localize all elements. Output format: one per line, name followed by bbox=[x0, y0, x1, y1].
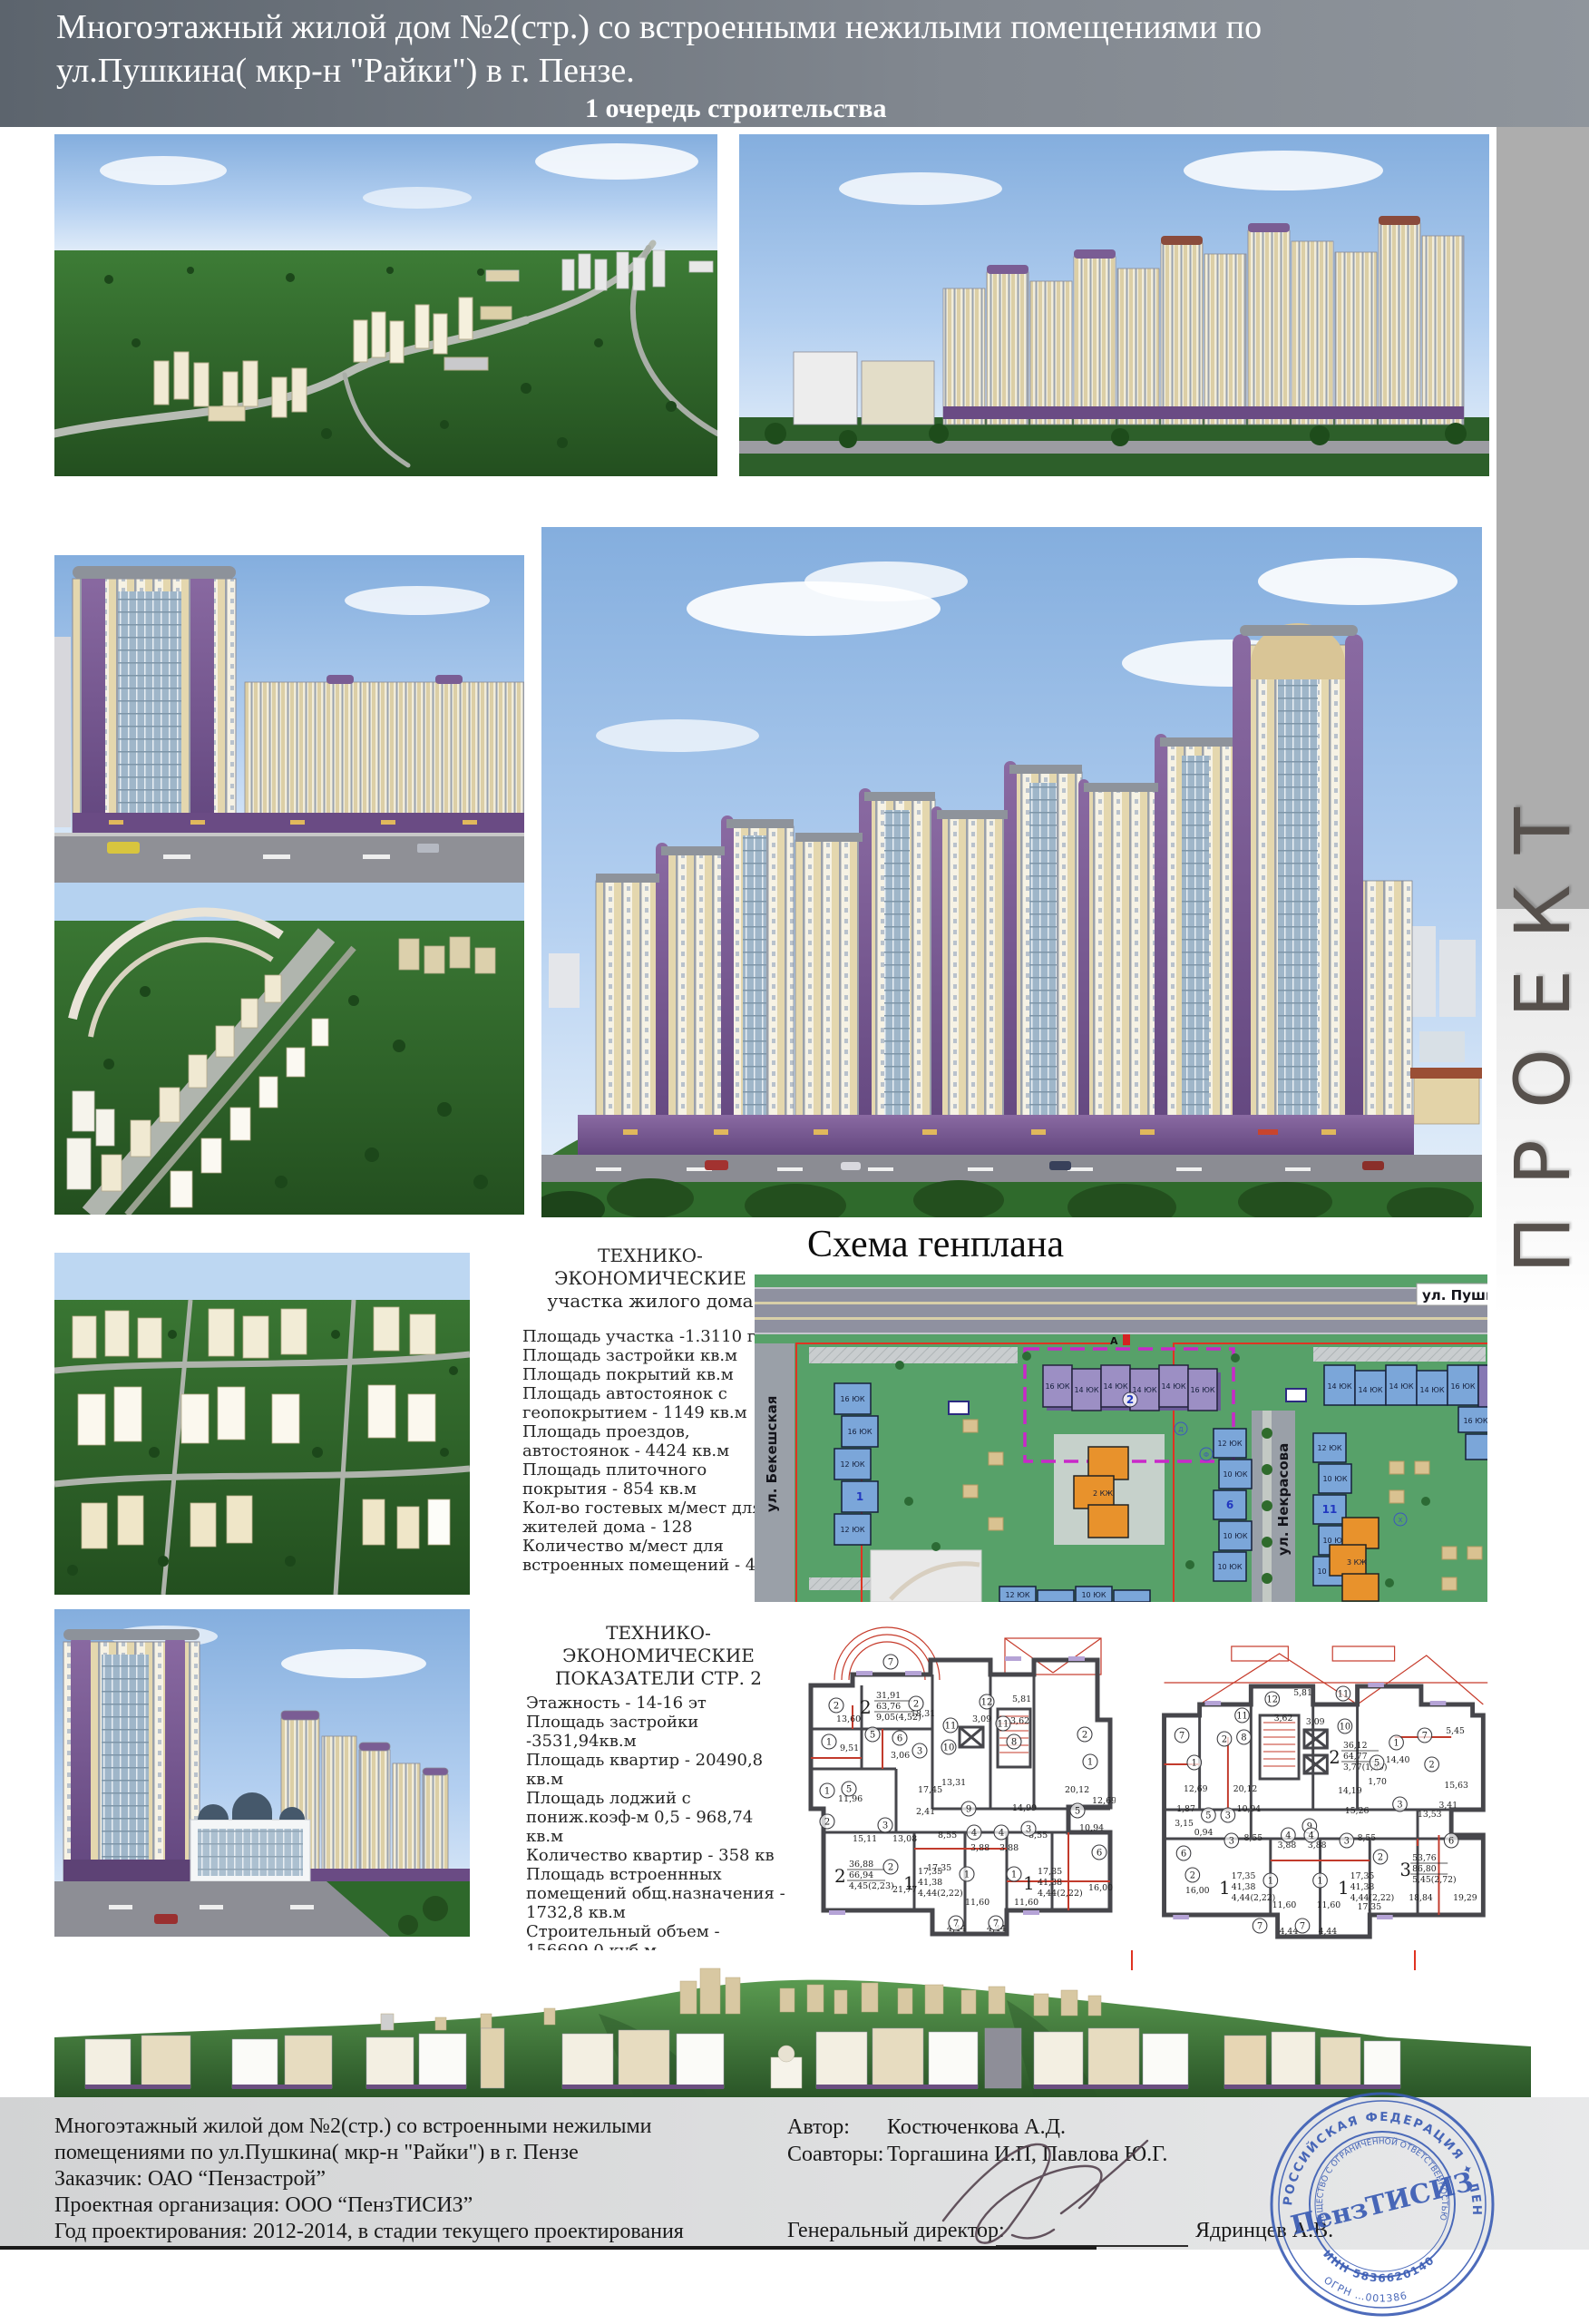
svg-text:17,35: 17,35 bbox=[1350, 1871, 1375, 1881]
site-plan-drawing: 16 ЮК 14 ЮК 14 ЮК 14 ЮК 14 ЮК 16 ЮК 2 А … bbox=[755, 1274, 1487, 1602]
svg-text:16 ЮК: 16 ЮК bbox=[1463, 1417, 1487, 1425]
footer-left-line: Проектная организация: ООО “ПензТИСИЗ” bbox=[54, 2192, 684, 2219]
svg-text:3,41: 3,41 bbox=[1438, 1801, 1457, 1811]
svg-text:11: 11 bbox=[1322, 1503, 1338, 1516]
svg-text:10,94: 10,94 bbox=[1237, 1804, 1262, 1814]
svg-text:41,38: 41,38 bbox=[1038, 1878, 1062, 1888]
svg-text:13,60: 13,60 bbox=[836, 1714, 861, 1724]
site-plan: 16 ЮК 14 ЮК 14 ЮК 14 ЮК 14 ЮК 16 ЮК 2 А … bbox=[755, 1274, 1487, 1602]
svg-text:11,60: 11,60 bbox=[965, 1898, 989, 1908]
tep-bldg-title1: ТЕХНИКО-ЭКОНОМИЧЕСКИЕ bbox=[526, 1622, 791, 1667]
svg-text:16 ЮК: 16 ЮК bbox=[1190, 1386, 1214, 1394]
svg-text:6: 6 bbox=[1448, 1836, 1454, 1846]
render-main-perspective-art bbox=[541, 527, 1482, 1217]
project-title-line1: Многоэтажный жилой дом №2(стр.) со встро… bbox=[56, 7, 1262, 47]
svg-text:31,91: 31,91 bbox=[876, 1691, 901, 1701]
svg-text:12,69: 12,69 bbox=[1092, 1796, 1116, 1806]
svg-text:14 ЮК: 14 ЮК bbox=[1358, 1386, 1382, 1394]
svg-text:16 ЮК: 16 ЮК bbox=[1450, 1382, 1475, 1391]
title-band: Многоэтажный жилой дом №2(стр.) со встро… bbox=[0, 0, 1589, 127]
svg-text:1,87: 1,87 bbox=[1176, 1804, 1195, 1814]
svg-text:36,88: 36,88 bbox=[849, 1860, 873, 1870]
svg-text:15,26: 15,26 bbox=[1345, 1806, 1370, 1816]
svg-text:18,84: 18,84 bbox=[1409, 1893, 1433, 1903]
project-title-line3: 1 очередь строительства bbox=[585, 93, 887, 124]
svg-text:3,88: 3,88 bbox=[999, 1843, 1019, 1853]
svg-text:14 ЮК: 14 ЮК bbox=[1132, 1386, 1156, 1394]
svg-text:13,31: 13,31 bbox=[941, 1778, 966, 1788]
svg-text:4,44(2,22): 4,44(2,22) bbox=[1232, 1893, 1276, 1903]
svg-text:15,11: 15,11 bbox=[853, 1834, 877, 1844]
svg-text:12 ЮК: 12 ЮК bbox=[1005, 1591, 1029, 1599]
svg-text:4,44: 4,44 bbox=[1319, 1927, 1338, 1937]
svg-text:5,81: 5,81 bbox=[1293, 1688, 1312, 1698]
svg-text:1: 1 bbox=[824, 1787, 830, 1797]
apartment-stacks: 2 36,12 64,77 3,77(1,89) 3 53,76 86,80 5… bbox=[1219, 1741, 1457, 1903]
svg-text:12,69: 12,69 bbox=[1184, 1784, 1208, 1794]
svg-text:1: 1 bbox=[1011, 1870, 1017, 1880]
svg-text:12 ЮК: 12 ЮК bbox=[1217, 1440, 1242, 1448]
subject-building-str2: 16 ЮК 14 ЮК 14 ЮК 14 ЮК 14 ЮК 16 ЮК 2 bbox=[1043, 1365, 1221, 1411]
render-aerial-avenue-art bbox=[54, 883, 524, 1215]
footer-left-line: Заказчик: ОАО “Пензастрой” bbox=[54, 2166, 684, 2192]
svg-text:4: 4 bbox=[999, 1829, 1004, 1839]
svg-text:14 ЮК: 14 ЮК bbox=[1103, 1382, 1127, 1391]
svg-text:16 ЮК: 16 ЮК bbox=[1045, 1382, 1069, 1391]
svg-text:17,45: 17,45 bbox=[918, 1785, 942, 1795]
svg-text:7: 7 bbox=[993, 1919, 999, 1929]
svg-text:2: 2 bbox=[913, 1700, 919, 1710]
wing-building bbox=[245, 682, 524, 818]
svg-text:12 ЮК: 12 ЮК bbox=[840, 1460, 864, 1469]
svg-text:15,63: 15,63 bbox=[1444, 1781, 1468, 1791]
svg-text:5: 5 bbox=[1075, 1807, 1080, 1817]
tep-line: Площадь лоджий с пониж.коэф-м 0,5 - 968,… bbox=[526, 1789, 791, 1846]
svg-text:21,77: 21,77 bbox=[892, 1885, 917, 1895]
svg-text:Д: Д bbox=[1178, 1426, 1184, 1433]
svg-text:13,08: 13,08 bbox=[892, 1834, 917, 1844]
svg-text:2: 2 bbox=[1329, 1747, 1340, 1768]
svg-text:86,80: 86,80 bbox=[1412, 1864, 1437, 1874]
floor-plan-2-drawing: 2 36,12 64,77 3,77(1,89) 3 53,76 86,80 5… bbox=[1146, 1628, 1496, 1941]
svg-text:6: 6 bbox=[897, 1734, 902, 1744]
svg-text:2: 2 bbox=[824, 1818, 830, 1828]
signature bbox=[925, 2130, 1170, 2250]
tep-site-block: ТЕХНИКО-ЭКОНОМИЧЕСКИЕ участка жилого дом… bbox=[522, 1245, 778, 1575]
svg-text:1: 1 bbox=[964, 1870, 970, 1880]
svg-text:36,12: 36,12 bbox=[1343, 1741, 1368, 1751]
tep-line: Площадь участка -1.3110 га bbox=[522, 1327, 778, 1346]
svg-text:8,55: 8,55 bbox=[938, 1831, 957, 1841]
svg-text:19,29: 19,29 bbox=[1453, 1893, 1477, 1903]
svg-text:11: 11 bbox=[945, 1722, 957, 1732]
svg-text:20,12: 20,12 bbox=[1065, 1785, 1089, 1795]
svg-text:7: 7 bbox=[953, 1919, 959, 1929]
project-title-line2: ул.Пушкина( мкр-н "Райки") в г. Пензе. bbox=[56, 51, 635, 91]
bottom-edge-line bbox=[0, 2246, 1097, 2250]
svg-text:3: 3 bbox=[1399, 1860, 1410, 1880]
svg-text:2: 2 bbox=[834, 1865, 846, 1887]
svg-text:4: 4 bbox=[1285, 1831, 1291, 1841]
coauthors-label: Соавторы: bbox=[787, 2143, 883, 2167]
svg-text:1: 1 bbox=[1338, 1878, 1349, 1899]
main-tower bbox=[73, 566, 236, 836]
svg-text:17,35: 17,35 bbox=[1038, 1867, 1062, 1877]
svg-text:7: 7 bbox=[1179, 1731, 1184, 1741]
svg-text:5,81: 5,81 bbox=[1012, 1694, 1031, 1704]
svg-text:63,76: 63,76 bbox=[876, 1702, 901, 1712]
svg-text:1: 1 bbox=[1219, 1878, 1230, 1899]
svg-text:2: 2 bbox=[1222, 1734, 1227, 1744]
svg-text:3,88: 3,88 bbox=[970, 1843, 989, 1853]
svg-text:ул. Некрасова: ул. Некрасова bbox=[1275, 1443, 1292, 1556]
arch-lines bbox=[834, 1627, 1101, 1680]
svg-text:2: 2 bbox=[860, 1696, 872, 1718]
bus bbox=[107, 842, 140, 854]
svg-text:3,62: 3,62 bbox=[1010, 1716, 1029, 1726]
svg-text:7: 7 bbox=[1422, 1731, 1428, 1741]
render-street-panorama bbox=[739, 134, 1489, 476]
svg-text:12 ЮК: 12 ЮК bbox=[840, 1526, 864, 1534]
svg-text:3: 3 bbox=[1229, 1836, 1234, 1846]
render-building-closeup bbox=[54, 555, 524, 883]
svg-text:5: 5 bbox=[846, 1785, 852, 1795]
svg-text:11: 11 bbox=[1236, 1711, 1247, 1721]
svg-text:41,38: 41,38 bbox=[918, 1878, 942, 1888]
tep-line: Кол-во гостевых м/мест для жителей дома … bbox=[522, 1499, 778, 1537]
svg-text:5: 5 bbox=[1205, 1811, 1211, 1821]
svg-text:2: 2 bbox=[1126, 1393, 1134, 1406]
car bbox=[154, 1914, 178, 1924]
svg-text:3,15: 3,15 bbox=[1175, 1819, 1194, 1829]
svg-text:41,38: 41,38 bbox=[1232, 1882, 1256, 1892]
render-aerial-masterplan bbox=[54, 134, 717, 476]
svg-text:6: 6 bbox=[1097, 1849, 1102, 1859]
svg-text:1: 1 bbox=[1087, 1758, 1093, 1768]
svg-text:4,45(2,23): 4,45(2,23) bbox=[849, 1881, 894, 1891]
svg-text:12: 12 bbox=[1267, 1694, 1278, 1704]
svg-text:14,99: 14,99 bbox=[1012, 1803, 1037, 1813]
svg-text:16,00: 16,00 bbox=[1185, 1886, 1210, 1896]
svg-text:А: А bbox=[1110, 1335, 1118, 1347]
render-aerial-masterplan-art bbox=[54, 134, 717, 476]
footer-left-line: Многоэтажный жилой дом №2(стр.) со встро… bbox=[54, 2114, 684, 2140]
render-street-panorama-art bbox=[739, 134, 1489, 476]
svg-text:1: 1 bbox=[1192, 1758, 1197, 1768]
svg-text:3 КЖ: 3 КЖ bbox=[1347, 1558, 1367, 1567]
road bbox=[541, 1155, 1482, 1184]
area-labels: 5,81 3,62 3,09 14,40 1,70 5,45 15,63 3,4… bbox=[1175, 1688, 1477, 1937]
svg-text:14 ЮК: 14 ЮК bbox=[1389, 1382, 1413, 1391]
svg-text:Х: Х bbox=[1399, 1517, 1403, 1524]
footer-left-block: Многоэтажный жилой дом №2(стр.) со встро… bbox=[54, 2114, 684, 2245]
svg-text:17,35: 17,35 bbox=[1232, 1871, 1256, 1881]
render-entrance-view bbox=[54, 1609, 470, 1937]
svg-text:5,45(2,72): 5,45(2,72) bbox=[1412, 1875, 1457, 1885]
svg-text:8: 8 bbox=[1011, 1738, 1017, 1748]
svg-text:66,94: 66,94 bbox=[849, 1870, 873, 1880]
tep-line: Площадь застройки -3531,94кв.м bbox=[526, 1713, 791, 1751]
svg-text:10: 10 bbox=[943, 1743, 955, 1753]
svg-text:14 ЮК: 14 ЮК bbox=[1327, 1382, 1351, 1391]
tep-site-title2: участка жилого дома bbox=[522, 1290, 778, 1313]
svg-text:3: 3 bbox=[1026, 1825, 1031, 1835]
svg-text:4,44(2,22): 4,44(2,22) bbox=[1038, 1889, 1083, 1899]
svg-text:9,51: 9,51 bbox=[840, 1743, 859, 1753]
stair-hatch bbox=[1263, 1723, 1295, 1766]
svg-text:11,60: 11,60 bbox=[1272, 1900, 1297, 1910]
tep-line: Количество м/мест для встроенных помещен… bbox=[522, 1537, 778, 1575]
svg-text:7: 7 bbox=[1257, 1921, 1262, 1931]
svg-text:8,55: 8,55 bbox=[1358, 1833, 1377, 1843]
svg-text:11: 11 bbox=[1338, 1689, 1349, 1699]
tall-tower bbox=[1233, 623, 1363, 1153]
svg-text:13,53: 13,53 bbox=[1418, 1810, 1442, 1820]
svg-text:11: 11 bbox=[998, 1720, 1009, 1730]
svg-text:3: 3 bbox=[1344, 1836, 1350, 1846]
svg-text:1: 1 bbox=[1317, 1876, 1322, 1886]
svg-text:14,40: 14,40 bbox=[1386, 1755, 1410, 1765]
tep-site-title1: ТЕХНИКО-ЭКОНОМИЧЕСКИЕ bbox=[522, 1245, 778, 1290]
svg-text:2: 2 bbox=[1082, 1731, 1087, 1741]
svg-text:12 ЮК: 12 ЮК bbox=[1317, 1444, 1341, 1452]
svg-text:11,60: 11,60 bbox=[1014, 1898, 1038, 1908]
svg-text:1: 1 bbox=[856, 1490, 863, 1503]
retail-base-band bbox=[578, 1115, 1414, 1155]
svg-text:2 КЖ: 2 КЖ bbox=[1093, 1489, 1113, 1498]
svg-text:14 ЮК: 14 ЮК bbox=[1161, 1382, 1185, 1391]
svg-text:14 ЮК: 14 ЮК bbox=[1419, 1386, 1444, 1394]
svg-text:16,00: 16,00 bbox=[1088, 1883, 1113, 1893]
render-skyline-panorama-art bbox=[54, 1950, 1531, 2097]
floor-plan-1: 2 31,91 63,76 9,05(4,52) 2 36,88 66,94 4… bbox=[796, 1622, 1116, 1941]
svg-text:3: 3 bbox=[917, 1747, 922, 1757]
apartment-stacks: 2 31,91 63,76 9,05(4,52) 2 36,88 66,94 4… bbox=[834, 1691, 1083, 1899]
pushkina-road bbox=[755, 1287, 1487, 1334]
svg-text:10 ЮК: 10 ЮК bbox=[1223, 1532, 1247, 1540]
svg-text:3,06: 3,06 bbox=[891, 1751, 910, 1761]
svg-text:5: 5 bbox=[1374, 1758, 1379, 1768]
floor-plan-2: 2 36,12 64,77 3,77(1,89) 3 53,76 86,80 5… bbox=[1146, 1628, 1496, 1941]
footer-left-line: помещениями по ул.Пушкина( мкр-н "Райки"… bbox=[54, 2140, 684, 2166]
svg-text:1,70: 1,70 bbox=[1368, 1777, 1387, 1787]
svg-text:20,12: 20,12 bbox=[1233, 1784, 1258, 1794]
svg-text:Ф: Ф bbox=[1204, 1451, 1209, 1459]
svg-text:1: 1 bbox=[1393, 1738, 1399, 1748]
svg-text:8,55: 8,55 bbox=[1243, 1833, 1262, 1843]
svg-text:10,94: 10,94 bbox=[1079, 1823, 1104, 1833]
svg-text:ИНН 5836620140: ИНН 5836620140 bbox=[1321, 2248, 1438, 2285]
svg-text:2,41: 2,41 bbox=[916, 1807, 935, 1817]
svg-text:10 ЮК: 10 ЮК bbox=[1223, 1470, 1247, 1479]
svg-text:2: 2 bbox=[1429, 1760, 1435, 1770]
render-entrance-view-art bbox=[54, 1609, 470, 1937]
render-aerial-avenue bbox=[54, 883, 524, 1215]
tep-bldg-title2: ПОКАЗАТЕЛИ СТР. 2 bbox=[526, 1667, 791, 1690]
svg-text:3,09: 3,09 bbox=[1306, 1717, 1325, 1727]
svg-text:1: 1 bbox=[1023, 1872, 1035, 1894]
svg-text:16 ЮК: 16 ЮК bbox=[840, 1395, 864, 1403]
svg-text:3,62: 3,62 bbox=[1274, 1714, 1293, 1723]
tep-line: Площадь проездов, автостоянок - 4424 кв.… bbox=[522, 1422, 778, 1460]
svg-text:17,35: 17,35 bbox=[927, 1863, 951, 1873]
svg-text:6: 6 bbox=[1181, 1849, 1186, 1859]
svg-text:ул. Бекешская: ул. Бекешская bbox=[764, 1396, 780, 1512]
svg-text:7: 7 bbox=[1300, 1921, 1305, 1931]
svg-text:4: 4 bbox=[1309, 1831, 1314, 1841]
svg-text:8: 8 bbox=[1241, 1733, 1246, 1743]
render-main-perspective bbox=[541, 527, 1482, 1217]
svg-text:2: 2 bbox=[1190, 1870, 1195, 1880]
floor-plan-1-drawing: 2 31,91 63,76 9,05(4,52) 2 36,88 66,94 4… bbox=[796, 1622, 1116, 1941]
tep-line: Площадь покрытий кв.м bbox=[522, 1365, 778, 1384]
svg-text:9: 9 bbox=[966, 1805, 971, 1815]
svg-text:2: 2 bbox=[888, 1863, 893, 1873]
svg-text:7: 7 bbox=[888, 1658, 893, 1668]
svg-text:6: 6 bbox=[1226, 1499, 1233, 1511]
tep-line: Этажность - 14-16 эт bbox=[526, 1694, 791, 1713]
roof-lines bbox=[1165, 1646, 1488, 1704]
footer-left-line: Год проектирования: 2012-2014, в стадии … bbox=[54, 2219, 684, 2245]
svg-text:3,09: 3,09 bbox=[972, 1714, 991, 1724]
svg-text:2: 2 bbox=[833, 1702, 839, 1712]
svg-text:0,94: 0,94 bbox=[1194, 1828, 1214, 1838]
svg-text:10 ЮК: 10 ЮК bbox=[1322, 1475, 1347, 1483]
tep-line: Площадь плиточного покрытия - 854 кв.м bbox=[522, 1460, 778, 1499]
tep-building-block: ТЕХНИКО-ЭКОНОМИЧЕСКИЕ ПОКАЗАТЕЛИ СТР. 2 … bbox=[526, 1622, 791, 1998]
svg-text:5: 5 bbox=[870, 1731, 875, 1741]
render-skyline-panorama bbox=[54, 1950, 1531, 2097]
tep-line: Площадь встроеннных помещений общ.назнач… bbox=[526, 1865, 791, 1922]
svg-text:2: 2 bbox=[1378, 1852, 1383, 1862]
svg-text:17,35: 17,35 bbox=[1358, 1902, 1382, 1912]
svg-text:14 ЮК: 14 ЮК bbox=[1074, 1386, 1098, 1394]
stamp: РОССИЙСКАЯ ФЕДЕРАЦИЯ ✦ ЛЕНИНСКИЙ РАЙОН О… bbox=[1262, 2085, 1502, 2324]
svg-text:1: 1 bbox=[1268, 1876, 1273, 1886]
tep-line: Количество квартир - 358 кв bbox=[526, 1846, 791, 1865]
svg-text:4: 4 bbox=[971, 1829, 977, 1839]
author-label: Автор: bbox=[787, 2115, 850, 2140]
svg-text:64,77: 64,77 bbox=[1343, 1752, 1368, 1762]
render-aerial-neighborhood bbox=[54, 1253, 470, 1595]
tep-line: Площадь квартир - 20490,8 кв.м bbox=[526, 1751, 791, 1789]
existing-white-area bbox=[871, 1550, 981, 1602]
svg-text:1: 1 bbox=[826, 1738, 832, 1748]
svg-text:41,38: 41,38 bbox=[1350, 1882, 1375, 1892]
svg-text:11,60: 11,60 bbox=[1317, 1900, 1341, 1910]
svg-text:ул. Пушкина: ул. Пушкина bbox=[1422, 1287, 1487, 1304]
svg-text:5,45: 5,45 bbox=[1446, 1726, 1465, 1736]
side-project-label: ПРОЕКТ bbox=[1496, 662, 1589, 1388]
tep-line: Площадь застройки кв.м bbox=[522, 1346, 778, 1365]
svg-text:10 ЮК: 10 ЮК bbox=[1081, 1591, 1106, 1599]
retail-base-band bbox=[943, 406, 1464, 419]
svg-text:10 ЮК: 10 ЮК bbox=[1217, 1563, 1242, 1571]
render-aerial-neighborhood-art bbox=[54, 1253, 470, 1595]
genplan-title: Схема генплана bbox=[807, 1223, 1064, 1266]
svg-text:53,76: 53,76 bbox=[1412, 1853, 1437, 1863]
svg-text:4,44(2,22): 4,44(2,22) bbox=[918, 1889, 963, 1899]
render-building-closeup-art bbox=[54, 555, 524, 883]
svg-text:3: 3 bbox=[1225, 1811, 1231, 1821]
svg-text:14,19: 14,19 bbox=[1338, 1786, 1362, 1796]
tep-line: Площадь автостоянок с геопокрытием - 114… bbox=[522, 1384, 778, 1422]
svg-text:10: 10 bbox=[1340, 1722, 1350, 1732]
main-tower-left bbox=[63, 1629, 200, 1881]
svg-text:12: 12 bbox=[981, 1698, 993, 1708]
svg-text:3: 3 bbox=[882, 1821, 888, 1831]
svg-text:16 ЮК: 16 ЮК bbox=[847, 1428, 872, 1436]
svg-text:3: 3 bbox=[1397, 1800, 1402, 1810]
car bbox=[417, 844, 439, 853]
